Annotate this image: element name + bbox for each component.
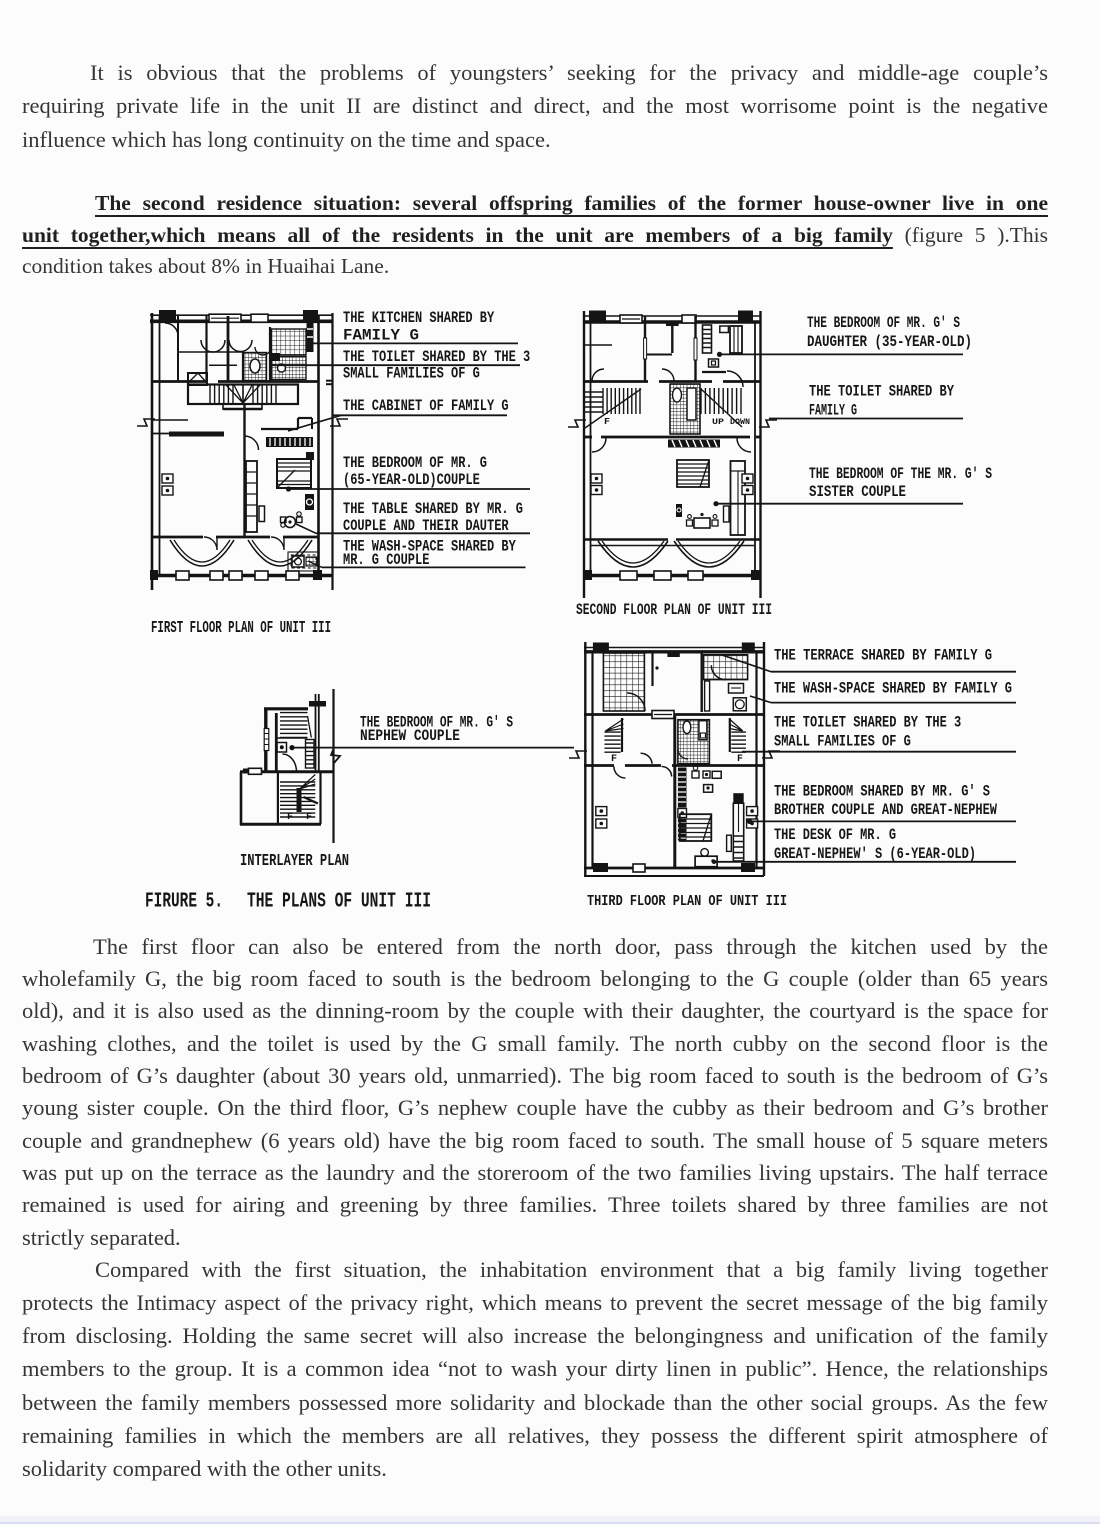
svg-text:THE KITCHEN SHARED BY: THE KITCHEN SHARED BY (343, 309, 495, 327)
svg-text:F: F (611, 754, 617, 765)
svg-text:THE TOILET SHARED BY THE 3: THE TOILET SHARED BY THE 3 (774, 714, 961, 732)
svg-text:THE BEDROOM OF THE MR. G' S: THE BEDROOM OF THE MR. G' S (809, 465, 992, 483)
svg-text:THE TOILET SHARED BY THE 3: THE TOILET SHARED BY THE 3 (343, 348, 530, 366)
svg-text:THE BEDROOM OF MR. G: THE BEDROOM OF MR. G (343, 454, 487, 472)
svg-text:F: F (604, 417, 610, 427)
svg-text:THE TERRACE SHARED BY FAMILY G: THE TERRACE SHARED BY FAMILY G (774, 647, 992, 665)
svg-text:FAMILY G: FAMILY G (809, 402, 857, 420)
svg-text:SECOND FLOOR PLAN OF UNIT III: SECOND FLOOR PLAN OF UNIT III (576, 601, 772, 619)
svg-text:THE CABINET OF FAMILY G: THE CABINET OF FAMILY G (343, 397, 509, 415)
svg-text:THIRD FLOOR PLAN OF UNIT III: THIRD FLOOR PLAN OF UNIT III (587, 893, 787, 910)
svg-text:SISTER COUPLE: SISTER COUPLE (809, 483, 906, 501)
svg-text:BROTHER COUPLE AND GREAT-NEPHE: BROTHER COUPLE AND GREAT-NEPHEW (774, 801, 998, 819)
svg-text:INTERLAYER PLAN: INTERLAYER PLAN (240, 852, 349, 871)
svg-text:THE TOILET SHARED BY: THE TOILET SHARED BY (809, 383, 955, 401)
svg-text:DOWN: DOWN (730, 418, 750, 427)
svg-text:COUPLE AND THEIR DAUTER: COUPLE AND THEIR DAUTER (343, 517, 509, 535)
svg-text:THE WASH-SPACE SHARED BY FAMIL: THE WASH-SPACE SHARED BY FAMILY G (774, 680, 1012, 698)
svg-text:THE BEDROOM SHARED BY MR. G' S: THE BEDROOM SHARED BY MR. G' S (774, 783, 990, 801)
svg-text:UP: UP (712, 418, 724, 427)
svg-text:F: F (287, 812, 293, 822)
svg-text:SMALL FAMILIES OF G: SMALL FAMILIES OF G (343, 365, 480, 383)
svg-text:(65-YEAR-OLD)COUPLE: (65-YEAR-OLD)COUPLE (343, 471, 480, 489)
svg-text:THE BEDROOM OF MR. G' S: THE BEDROOM OF MR. G' S (807, 314, 960, 332)
svg-text:F: F (737, 754, 743, 765)
svg-text:FAMILY G: FAMILY G (343, 327, 419, 345)
svg-text:FIRURE 5.: FIRURE 5. (145, 890, 223, 914)
svg-text:F: F (306, 812, 312, 822)
svg-text:THE PLANS OF UNIT III: THE PLANS OF UNIT III (247, 890, 431, 914)
svg-text:MR. G COUPLE: MR. G COUPLE (343, 551, 429, 569)
svg-text:SMALL FAMILIES OF G: SMALL FAMILIES OF G (774, 733, 911, 751)
svg-text:DAUGHTER (35-YEAR-OLD): DAUGHTER (35-YEAR-OLD) (807, 333, 972, 351)
svg-text:GREAT-NEPHEW' S (6-YEAR-OLD): GREAT-NEPHEW' S (6-YEAR-OLD) (774, 845, 976, 863)
svg-text:THE DESK OF MR. G: THE DESK OF MR. G (774, 826, 896, 844)
svg-text:NEPHEW COUPLE: NEPHEW COUPLE (360, 727, 460, 745)
svg-text:FIRST FLOOR PLAN OF UNIT III: FIRST FLOOR PLAN OF UNIT III (151, 619, 331, 638)
svg-text:THE TABLE SHARED BY MR. G: THE TABLE SHARED BY MR. G (343, 500, 523, 518)
